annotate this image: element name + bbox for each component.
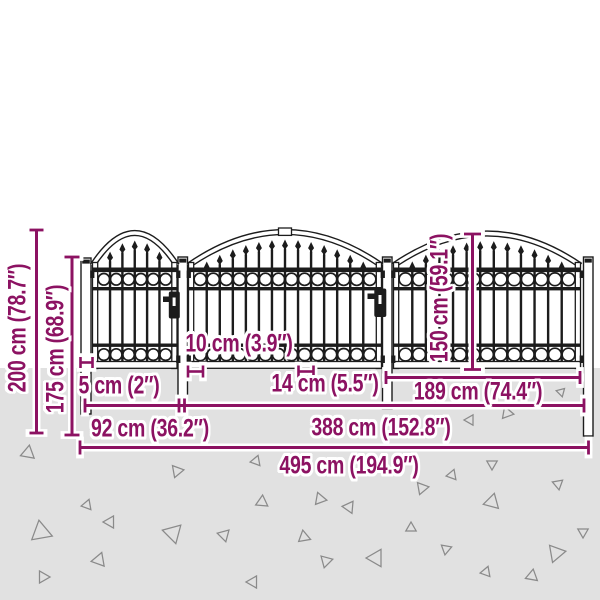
dim-label-post-width: 5 cm (2″)	[79, 372, 160, 401]
dim-label-panel-width: 189 cm (74.4″)	[414, 378, 543, 407]
fence-illustration	[0, 0, 600, 600]
dim-label-bar-spacing-large: 14 cm (5.5″)	[271, 370, 378, 399]
dim-label-panel-height: 150 cm (59.1″)	[426, 234, 455, 363]
dim-label-total-height: 200 cm (78.7″)	[3, 264, 32, 393]
dim-label-section-width: 388 cm (152.8″)	[311, 414, 450, 443]
dim-label-total-width: 495 cm (194.9″)	[279, 452, 418, 481]
fence-dimension-diagram: 200 cm (78.7″) 175 cm (68.9″) 150 cm (59…	[0, 0, 600, 600]
dim-label-bar-spacing-small: 10 cm (3.9″)	[185, 330, 292, 359]
dim-label-gate-width: 92 cm (36.2″)	[91, 415, 209, 444]
dim-label-post-height: 175 cm (68.9″)	[41, 285, 70, 414]
